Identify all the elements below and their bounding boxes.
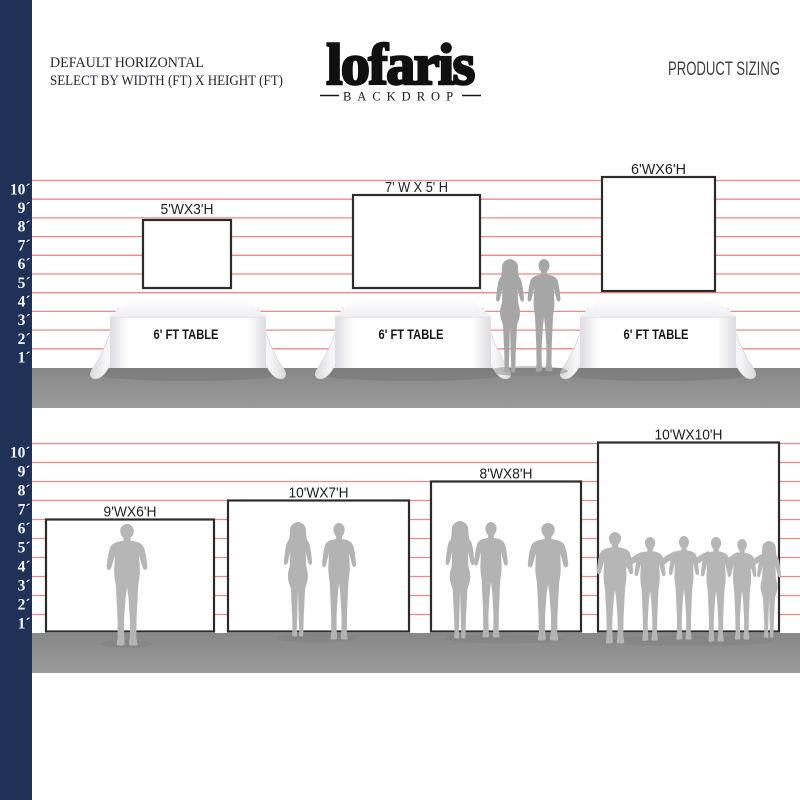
svg-text:6' FT TABLE: 6' FT TABLE [154, 326, 219, 342]
svg-text:2´: 2´ [18, 331, 31, 348]
svg-text:7' W X 5' H: 7' W X 5' H [385, 179, 448, 196]
svg-text:SELECT BY WIDTH (FT) X HEIGHT: SELECT BY WIDTH (FT) X HEIGHT (FT) [50, 73, 283, 89]
svg-text:4´: 4´ [18, 294, 31, 311]
svg-text:2´: 2´ [18, 596, 31, 613]
svg-text:6' FT TABLE: 6' FT TABLE [379, 326, 444, 342]
svg-text:10'WX7'H: 10'WX7'H [289, 485, 349, 502]
svg-text:7´: 7´ [18, 237, 31, 254]
svg-text:9'WX6'H: 9'WX6'H [104, 504, 157, 521]
svg-text:1´: 1´ [18, 350, 31, 367]
svg-text:10´: 10´ [10, 444, 31, 461]
svg-text:8'WX8'H: 8'WX8'H [480, 466, 533, 483]
svg-text:3´: 3´ [18, 312, 31, 329]
svg-text:6'WX6'H: 6'WX6'H [631, 161, 686, 178]
svg-text:1´: 1´ [18, 615, 31, 632]
svg-text:6´: 6´ [18, 520, 31, 537]
svg-text:PRODUCT SIZING: PRODUCT SIZING [668, 58, 780, 80]
svg-text:9´: 9´ [18, 200, 31, 217]
svg-text:10´: 10´ [10, 181, 31, 198]
svg-text:lofaris: lofaris [326, 32, 474, 97]
svg-text:6' FT TABLE: 6' FT TABLE [624, 326, 689, 342]
svg-text:4´: 4´ [18, 558, 31, 575]
svg-text:6´: 6´ [18, 256, 31, 273]
svg-text:5´: 5´ [18, 539, 31, 556]
svg-text:8´: 8´ [18, 482, 31, 499]
svg-text:9´: 9´ [18, 463, 31, 480]
svg-text:5'WX3'H: 5'WX3'H [161, 201, 214, 218]
svg-text:DEFAULT HORIZONTAL: DEFAULT HORIZONTAL [50, 55, 204, 71]
svg-text:7´: 7´ [18, 501, 31, 518]
svg-text:BACKDROP: BACKDROP [343, 90, 459, 104]
svg-text:3´: 3´ [18, 577, 31, 594]
svg-text:10'WX10'H: 10'WX10'H [655, 427, 723, 444]
svg-text:5´: 5´ [18, 275, 31, 292]
svg-text:8´: 8´ [18, 219, 31, 236]
